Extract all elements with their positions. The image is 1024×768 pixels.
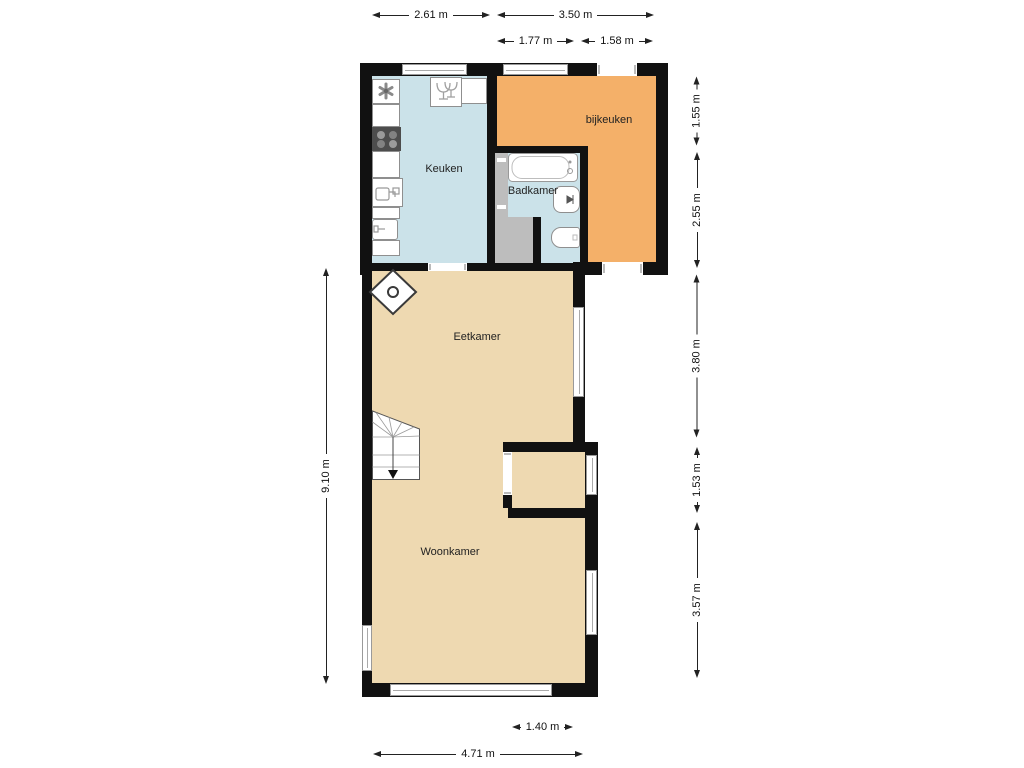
counter-segment [460,78,487,104]
wall-keuken-bijkeuken [487,76,497,152]
room-bijkeuken-floor-right [588,152,656,262]
extractor-fan-icon [372,79,400,104]
wall-keuken-right [487,152,495,264]
window-woonkamer-bottom [390,684,552,696]
kitchen-sink-icon [372,178,403,207]
room-woonkamer-floor [372,518,585,683]
window-bijkeuken-top [503,64,568,75]
room-label-woonkamer: Woonkamer [420,546,479,558]
door-keuken-eetkamer [428,263,467,271]
door-niche [503,452,512,495]
wall-badkamer-right [580,153,588,264]
wall-right-upper [656,63,668,275]
counter-segment [372,207,400,219]
window-woonkamer-left [362,625,372,671]
floor-plan: Keuken bijkeuken Badkamer Eetkamer Woonk… [0,0,1024,768]
window-woonkamer-right [586,570,597,635]
dim-bottom-140: 1.40 m [512,720,573,734]
window-niche-right [586,455,597,495]
room-label-bijkeuken: bijkeuken [586,114,632,126]
window-keuken-top [402,64,467,75]
washbasin-icon [551,227,580,248]
niche-floor [512,452,585,508]
wall-niche-bottom [508,508,598,518]
bathtub-icon [508,153,578,182]
counter-segment [372,240,400,256]
stairs-icon [372,410,420,480]
wall-niche-top [503,442,598,452]
wall-hall-right [533,217,541,264]
kitchen-unit-icon [372,219,398,240]
dim-right-255: 2.55 m [690,152,704,268]
door-bijkeuken-bottom [602,262,643,275]
dim-right-357: 3.57 m [690,522,704,678]
room-label-keuken: Keuken [425,163,462,175]
window-eetkamer-right [573,307,584,397]
wood-stove-icon [368,268,418,316]
counter-segment [372,104,400,127]
room-label-badkamer: Badkamer [508,185,558,197]
dim-top-177: 1.77 m [497,34,574,48]
dim-top-350: 3.50 m [497,8,654,22]
hall-floor [495,217,533,264]
dim-top-261: 2.61 m [372,8,490,22]
dim-bottom-471: 4.71 m [373,747,583,761]
wall-left-upper [360,63,372,275]
room-label-eetkamer: Eetkamer [453,331,500,343]
dim-top-158: 1.58 m [581,34,653,48]
counter-segment [372,151,400,178]
dim-right-153: 1.53 m [690,447,704,513]
dim-right-380: 3.80 m [690,275,704,438]
dishwasher-icon [430,77,462,107]
stove-icon [372,127,401,151]
dim-right-155: 1.55 m [690,77,704,146]
dim-left-910: 9.10 m [319,268,333,684]
wall-badkamer-top [490,146,588,153]
door-bijkeuken-top [597,63,637,76]
